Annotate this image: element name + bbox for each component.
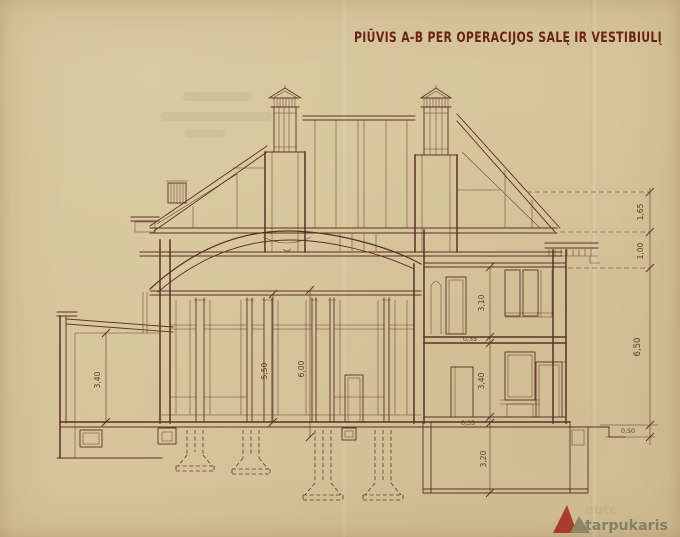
pencil-ghost-notes bbox=[160, 92, 272, 138]
right-wing bbox=[424, 250, 566, 423]
ground-lines bbox=[60, 422, 590, 427]
dim-label-upper-slab: 0,35 bbox=[463, 336, 477, 343]
upper-room-window bbox=[505, 270, 520, 316]
dim-label-roof-upper: 1,65 bbox=[636, 203, 645, 220]
drawing-title: PIŪVIS A-B PER OPERACIJOS SALĘ IR VESTIB… bbox=[354, 28, 662, 46]
dim-label-hall-clear: 5,50 bbox=[260, 362, 269, 379]
scanned-drawing-sheet: PIŪVIS A-B PER OPERACIJOS SALĘ IR VESTIB… bbox=[0, 0, 680, 537]
foundations bbox=[158, 428, 403, 500]
basement bbox=[423, 423, 625, 493]
lower-room-window bbox=[505, 352, 535, 400]
dim-label-roof-lower: 1,00 bbox=[636, 242, 645, 259]
lower-room-door bbox=[536, 362, 562, 417]
dim-label-right-total: 6,50 bbox=[633, 338, 643, 357]
dim-label-plinth: 0,50 bbox=[621, 428, 635, 435]
section-drawing: PIŪVIS A-B PER OPERACIJOS SALĘ IR VESTIB… bbox=[0, 0, 680, 537]
chimney-right bbox=[415, 85, 457, 252]
pier-base bbox=[342, 428, 356, 440]
pier-base bbox=[158, 428, 176, 444]
dim-label-left-room: 3,40 bbox=[93, 371, 102, 388]
watermark: autc tarpukaris bbox=[553, 503, 668, 534]
upper-room-niche bbox=[431, 282, 441, 335]
dim-label-lower-slab: 0,35 bbox=[461, 420, 475, 427]
exterior-grade-steps bbox=[588, 427, 625, 437]
left-wing bbox=[57, 292, 173, 458]
dim-label-lower-room: 3,40 bbox=[477, 372, 486, 389]
dim-label-upper-room: 3,10 bbox=[477, 294, 486, 311]
hall-colonnade bbox=[160, 298, 421, 422]
upper-room-window bbox=[523, 270, 538, 316]
dimension-annotations: 1,65 1,00 6,50 0,50 3,10 0,35 3,40 0,35 … bbox=[93, 188, 658, 497]
dim-label-basement-room: 3,20 bbox=[479, 450, 488, 467]
chimney-left bbox=[265, 85, 305, 252]
dim-label-hall-total: 6,00 bbox=[297, 360, 306, 377]
watermark-text-line2: tarpukaris bbox=[585, 518, 668, 534]
hall-vault bbox=[150, 230, 424, 423]
basement-window bbox=[572, 430, 584, 445]
lower-room-panel bbox=[451, 367, 473, 417]
watermark-text-line1: autc bbox=[585, 503, 617, 518]
